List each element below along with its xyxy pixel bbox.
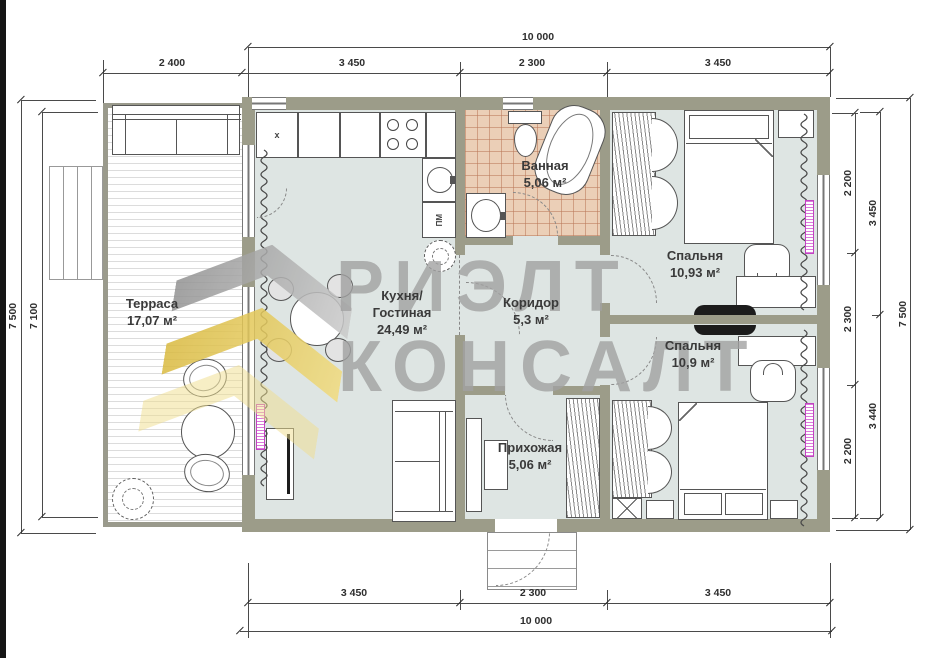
dim-top-seg-2: 2 300	[492, 57, 572, 69]
terrace-name: Терраса	[102, 296, 202, 313]
dim-right-outer: 7 500	[897, 294, 909, 334]
bedroom1-wardrobe	[612, 112, 656, 236]
bedroom1-window	[817, 175, 830, 285]
dim-right-inner-0: 2 200	[842, 163, 854, 203]
bathroom-sink-cabinet	[466, 193, 506, 238]
bathroom-window	[503, 97, 533, 110]
hallway-name: Прихожая	[480, 440, 580, 457]
dim-top-seg-0: 2 400	[132, 57, 212, 69]
corridor-area: 5,3 м²	[481, 312, 581, 329]
dim-ext	[460, 62, 461, 97]
dim-top-total-line	[248, 47, 830, 48]
kitchen-cabinet-x-label: x	[274, 130, 279, 140]
hallway-area: 5,06 м²	[480, 457, 580, 474]
dim-bottom-seg-1: 2 300	[493, 587, 573, 599]
corridor-label: Коридор 5,3 м²	[481, 295, 581, 329]
dim-right-middle-1: 3 440	[867, 396, 879, 436]
dim-left-outer-line	[21, 100, 22, 533]
left-edge-strip	[0, 0, 6, 658]
dim-top-seg-line	[103, 73, 830, 74]
bedroom1-tv-icon	[694, 305, 756, 315]
dim-conn	[872, 315, 880, 316]
dim-right-outer-line	[910, 98, 911, 530]
dim-conn	[847, 253, 856, 254]
floor-plan-canvas: x ПМ	[0, 0, 935, 658]
dim-conn	[847, 385, 856, 386]
bedroom2-name: Спальня	[643, 338, 743, 355]
dim-conn	[42, 517, 98, 518]
bathroom-area: 5,06 м²	[495, 175, 595, 192]
kitchen-stove	[380, 112, 426, 158]
dim-bottom-seg-0: 3 450	[314, 587, 394, 599]
dim-right-middle-0: 3 450	[867, 193, 879, 233]
bedroom2-nightstand-right	[770, 500, 798, 519]
toilet-tank	[508, 111, 542, 124]
kitchen-name-1: Кухня/	[352, 288, 452, 305]
kitchen-name-2: Гостиная	[352, 305, 452, 322]
dim-right-inner-1: 2 300	[842, 299, 854, 339]
corridor-name: Коридор	[481, 295, 581, 312]
dim-left-outer: 7 500	[7, 296, 19, 336]
kitchen-cabinet-2	[298, 112, 340, 158]
bedroom2-label: Спальня 10,9 м²	[643, 338, 743, 372]
dim-conn	[860, 518, 880, 519]
dim-right-inner-line	[855, 113, 856, 518]
dim-top-seg-3: 3 450	[678, 57, 758, 69]
dim-conn	[860, 112, 880, 113]
dim-ext	[103, 60, 104, 103]
kitchen-corner-cabinet	[426, 112, 456, 158]
dim-bottom-total: 10 000	[496, 615, 576, 627]
dim-bottom-total-line	[240, 631, 832, 632]
dishwasher-label: ПМ	[435, 214, 444, 226]
dim-top-total: 10 000	[498, 31, 578, 43]
kitchen-cabinet-3	[340, 112, 380, 158]
kitchen-label: Кухня/ Гостиная 24,49 м²	[352, 288, 452, 339]
opening-entrance-door	[495, 519, 557, 532]
terrace-window-upper	[242, 145, 255, 237]
dim-bottom-seg-2: 3 450	[678, 587, 758, 599]
dim-ext	[248, 47, 249, 97]
terrace-area: 17,07 м²	[102, 313, 202, 330]
living-sofa	[392, 400, 456, 522]
hallway-label: Прихожая 5,06 м²	[480, 440, 580, 474]
kitchen-window	[252, 97, 286, 110]
dim-conn	[836, 530, 910, 531]
dim-conn	[42, 112, 98, 113]
bedroom1-bed	[684, 110, 774, 244]
bedroom1-label: Спальня 10,93 м²	[645, 248, 745, 282]
dim-right-inner-2: 2 200	[842, 431, 854, 471]
bedroom2-shoe-box	[612, 498, 642, 519]
bedroom2-window	[817, 368, 830, 470]
bedroom1-name: Спальня	[645, 248, 745, 265]
bathroom-name: Ванная	[495, 158, 595, 175]
opening-bathroom-door	[513, 236, 558, 245]
dim-conn	[832, 518, 858, 519]
bedroom1-radiator	[805, 200, 814, 254]
bedroom2-nightstand-left	[646, 500, 674, 519]
kitchen-dishwasher: ПМ	[422, 202, 456, 238]
kitchen-area: 24,49 м²	[352, 322, 452, 339]
dim-conn	[832, 113, 858, 114]
exterior-wall-top	[242, 97, 830, 110]
terrace-side-steps	[49, 166, 103, 280]
terrace-wall-bottom	[103, 522, 242, 527]
terrace-sofa	[112, 105, 240, 155]
bedroom2-area: 10,9 м²	[643, 355, 743, 372]
partition-bedrooms	[610, 315, 817, 324]
dim-left-inner-line	[42, 112, 43, 517]
bedroom2-wardrobe	[612, 400, 652, 498]
dim-ext	[607, 62, 608, 97]
bedroom2-bed	[678, 402, 768, 520]
kitchen-sink-cabinet	[422, 158, 456, 202]
dim-bottom-seg-line	[248, 603, 830, 604]
dim-conn	[21, 100, 96, 101]
watermark-chevron-yellow-2	[132, 351, 327, 497]
dim-conn	[836, 98, 910, 99]
dim-top-seg-1: 3 450	[312, 57, 392, 69]
bedroom1-area: 10,93 м²	[645, 265, 745, 282]
bedroom2-radiator	[805, 403, 814, 457]
terrace-label: Терраса 17,07 м²	[102, 296, 202, 330]
dim-left-inner: 7 100	[28, 296, 40, 336]
dim-conn	[21, 533, 96, 534]
bathroom-label: Ванная 5,06 м²	[495, 158, 595, 192]
